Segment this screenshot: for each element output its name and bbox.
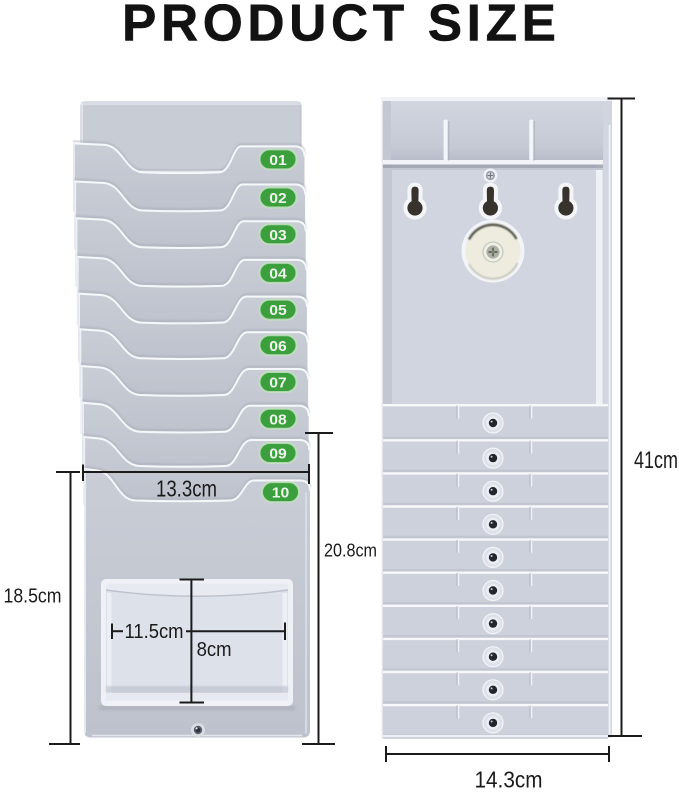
svg-text:PRODUCT SIZE: PRODUCT SIZE [122,0,556,52]
svg-text:08: 08 [269,412,287,428]
svg-text:09: 09 [269,447,287,463]
svg-text:14.3cm: 14.3cm [475,767,543,793]
svg-text:01: 01 [269,153,287,169]
svg-text:03: 03 [269,228,287,244]
svg-text:07: 07 [269,376,287,392]
svg-text:8cm: 8cm [197,639,232,661]
svg-text:13.3cm: 13.3cm [156,476,217,502]
svg-text:20.8cm: 20.8cm [324,540,377,561]
svg-text:10: 10 [272,486,290,502]
svg-text:06: 06 [269,339,287,355]
svg-text:05: 05 [269,303,287,319]
svg-text:04: 04 [269,267,287,283]
svg-text:18.5cm: 18.5cm [4,584,62,607]
svg-text:41cm: 41cm [634,447,678,474]
svg-text:11.5cm: 11.5cm [125,621,184,643]
svg-text:02: 02 [269,191,287,207]
